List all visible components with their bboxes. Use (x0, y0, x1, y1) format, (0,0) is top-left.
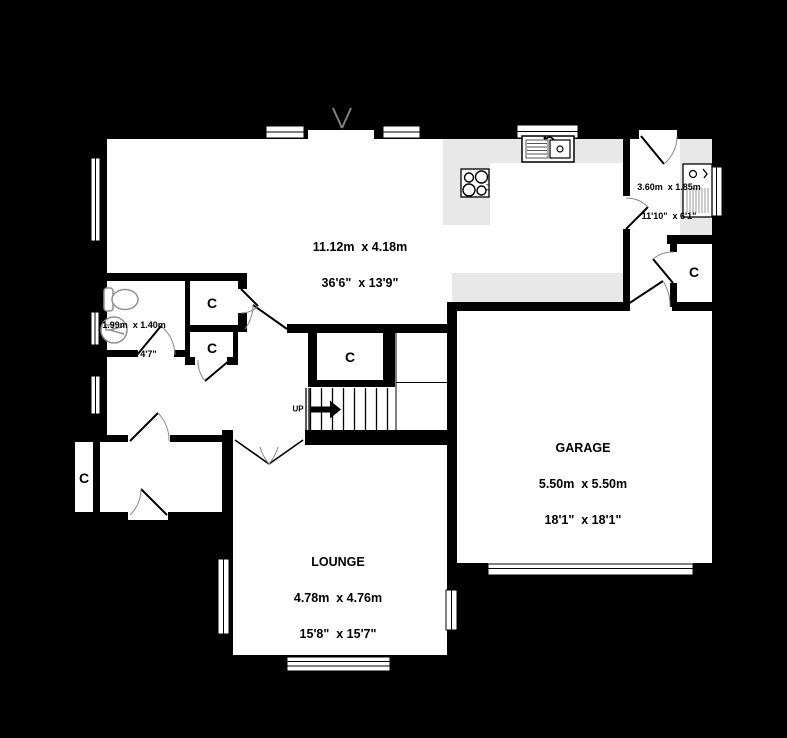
wc-size-imperial: 6'6" x 4'7" (102, 350, 166, 360)
closet-label-upper: C (207, 295, 217, 311)
kitchen-living-size-imperial: 36'6" x 13'9" (313, 277, 408, 289)
lounge-size-imperial: 15'8" x 15'7" (294, 628, 382, 640)
hob-icon (461, 169, 489, 197)
window-utility (711, 167, 722, 216)
garage-size-metric: 5.50m x 5.50m (539, 478, 627, 490)
wc-label: 1.99m x 1.40m 6'6" x 4'7" (102, 302, 166, 378)
garage-size-imperial: 18'1" x 18'1" (539, 514, 627, 526)
utility-size-imperial: 11'10" x 6'1" (637, 212, 701, 222)
window-hall (91, 376, 100, 414)
kitchen-sink-icon (522, 136, 574, 162)
window-left-living (91, 158, 100, 241)
garage-label: GARAGE 5.50m x 5.50m 18'1" x 18'1" (539, 418, 627, 550)
window-lounge-left (218, 559, 229, 634)
lounge-label: LOUNGE 4.78m x 4.76m 15'8" x 15'7" (294, 532, 382, 664)
utility-size-metric: 3.60m x 1.85m (637, 183, 701, 193)
garage-name: GARAGE (539, 442, 627, 454)
kitchen-living-label: 11.12m x 4.18m 36'6" x 13'9" (313, 217, 408, 313)
window-top-right (383, 126, 420, 138)
lounge-size-metric: 4.78m x 4.76m (294, 592, 382, 604)
stairs-up-label: UP (292, 405, 303, 414)
utility-label: 3.60m x 1.85m 11'10" x 6'1" (637, 164, 701, 240)
window-wc (91, 312, 99, 345)
closet-label-lower: C (207, 340, 217, 356)
lounge-name: LOUNGE (294, 556, 382, 568)
wc-size-metric: 1.99m x 1.40m (102, 321, 166, 331)
kitchen-living-size-metric: 11.12m x 4.18m (313, 241, 408, 253)
closet-label-stairs: C (345, 349, 355, 365)
closet-label-utility: C (689, 264, 699, 280)
window-top-left (266, 126, 304, 138)
window-lounge-right (446, 590, 457, 630)
closet-label-entrance: C (79, 470, 89, 486)
floor-plan: 11.12m x 4.18m 36'6" x 13'9" 3.60m x 1.8… (0, 0, 787, 738)
garage-door (488, 564, 693, 575)
